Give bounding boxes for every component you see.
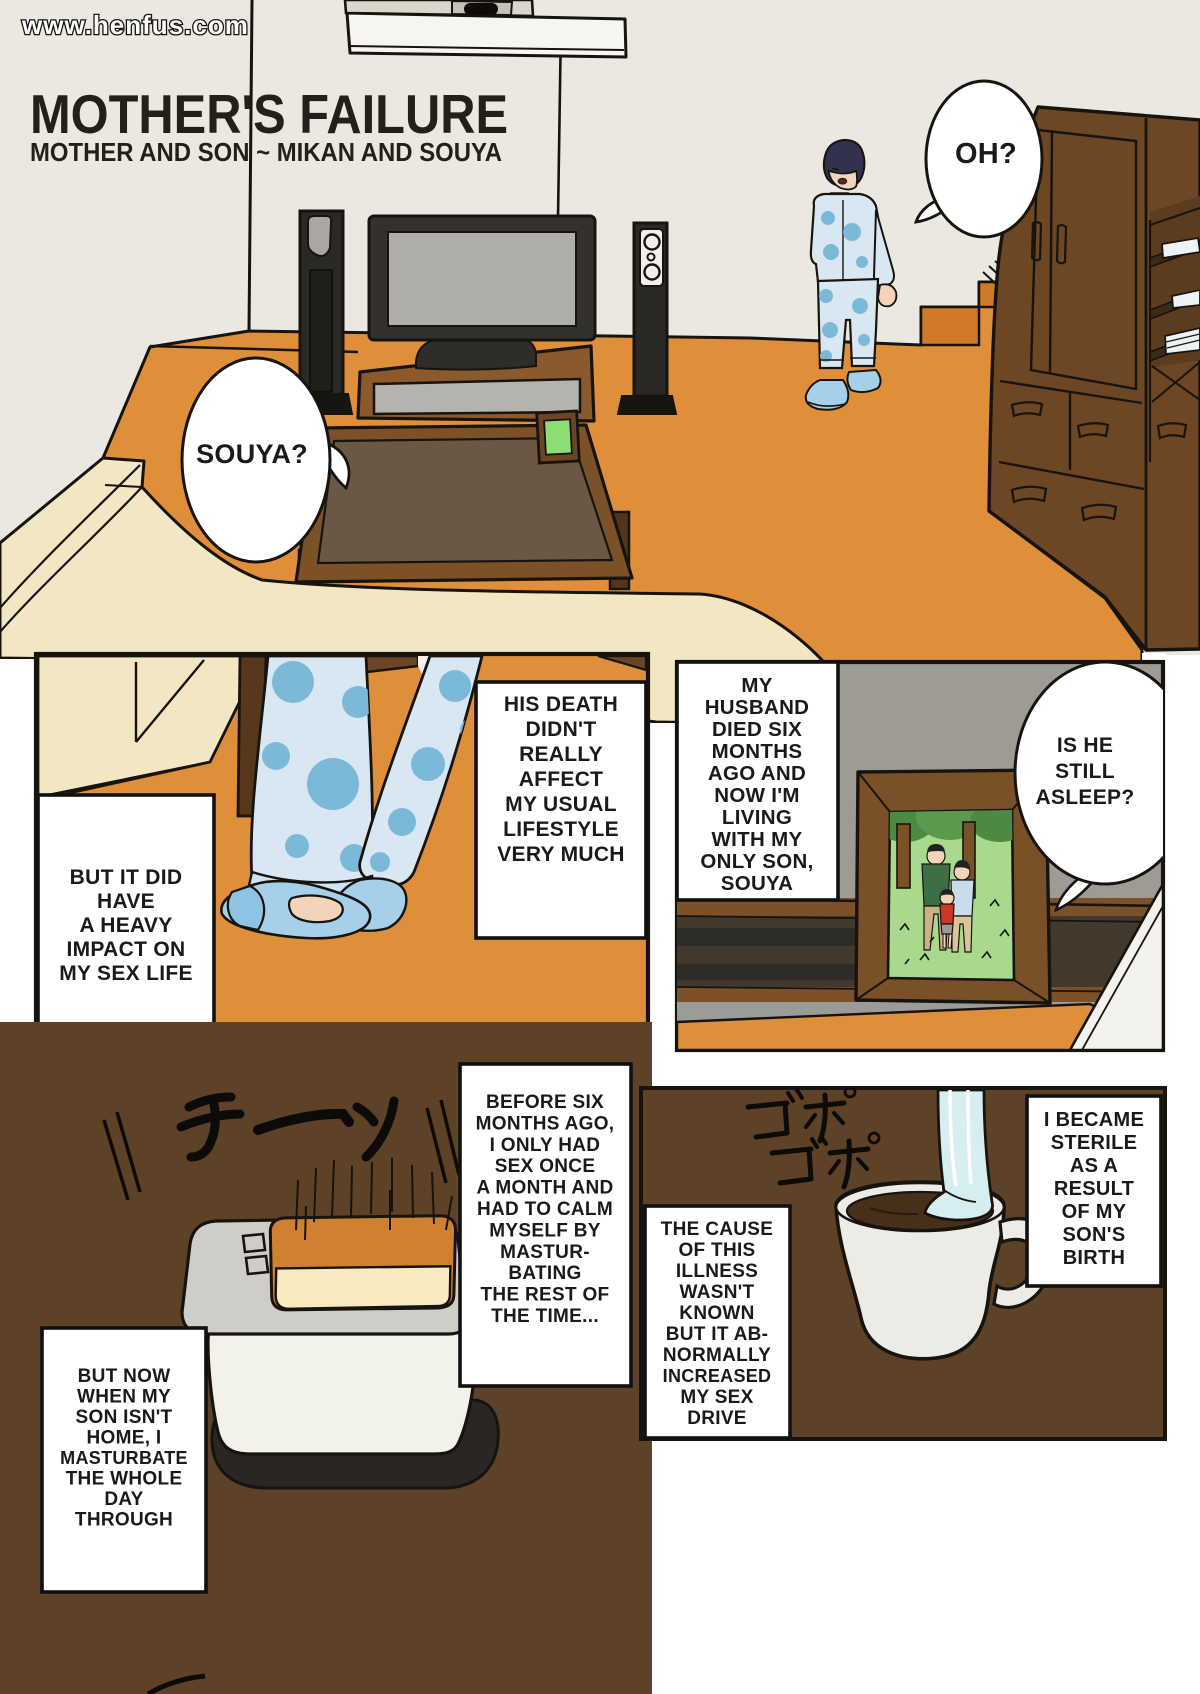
svg-text:BUT IT AB-: BUT IT AB-	[666, 1324, 769, 1345]
svg-text:AS A: AS A	[1070, 1155, 1118, 1177]
svg-text:MY SEX: MY SEX	[680, 1387, 753, 1408]
svg-text:DRIVE: DRIVE	[687, 1408, 747, 1429]
svg-text:OF THIS: OF THIS	[678, 1240, 755, 1261]
svg-text:STERILE: STERILE	[1051, 1132, 1138, 1154]
svg-text:MONTHS AGO,: MONTHS AGO,	[476, 1113, 615, 1134]
svg-text:HAVE: HAVE	[97, 890, 155, 913]
svg-text:HIS DEATH: HIS DEATH	[504, 693, 618, 716]
svg-text:DAY: DAY	[104, 1489, 143, 1510]
svg-text:LIVING: LIVING	[722, 806, 792, 829]
svg-text:HUSBAND: HUSBAND	[705, 696, 810, 719]
svg-text:MASTUR-: MASTUR-	[500, 1242, 590, 1263]
svg-text:HOME, I: HOME, I	[87, 1428, 162, 1449]
svg-text:www.henfus.com: www.henfus.com	[21, 10, 249, 40]
svg-text:ONLY SON,: ONLY SON,	[700, 850, 813, 873]
svg-text:RESULT: RESULT	[1054, 1178, 1134, 1200]
svg-text:SEX ONCE: SEX ONCE	[495, 1156, 596, 1177]
svg-text:MY: MY	[741, 674, 772, 697]
svg-text:OF MY: OF MY	[1062, 1201, 1127, 1223]
svg-text:SON ISN'T: SON ISN'T	[76, 1407, 173, 1428]
svg-text:THE REST OF: THE REST OF	[481, 1285, 610, 1306]
svg-text:BUT IT DID: BUT IT DID	[70, 866, 183, 889]
svg-text:NOW I'M: NOW I'M	[714, 784, 800, 807]
svg-text:MOTHER AND SON ~ MIKAN AND SOU: MOTHER AND SON ~ MIKAN AND SOUYA	[30, 137, 502, 167]
svg-text:ASLEEP?: ASLEEP?	[1036, 786, 1135, 809]
svg-text:AFFECT: AFFECT	[519, 768, 604, 791]
svg-text:MASTURBATE: MASTURBATE	[60, 1448, 188, 1468]
svg-text:LIFESTYLE: LIFESTYLE	[503, 818, 619, 841]
svg-text:DIDN'T: DIDN'T	[526, 718, 597, 741]
svg-text:I ONLY HAD: I ONLY HAD	[490, 1135, 601, 1156]
svg-text:NORMALLY: NORMALLY	[663, 1345, 771, 1366]
svg-text:HAD TO CALM: HAD TO CALM	[477, 1199, 613, 1220]
svg-text:THE TIME...: THE TIME...	[491, 1306, 599, 1327]
svg-text:REALLY: REALLY	[519, 743, 603, 766]
svg-text:WASN'T: WASN'T	[680, 1282, 755, 1303]
svg-text:SOUYA: SOUYA	[721, 872, 794, 895]
svg-text:IS HE: IS HE	[1057, 734, 1113, 757]
svg-text:STILL: STILL	[1055, 760, 1115, 783]
svg-text:A HEAVY: A HEAVY	[79, 914, 172, 937]
svg-text:BATING: BATING	[508, 1263, 581, 1284]
svg-text:A MONTH AND: A MONTH AND	[477, 1178, 614, 1199]
svg-text:BEFORE SIX: BEFORE SIX	[486, 1092, 604, 1113]
svg-text:MY USUAL: MY USUAL	[505, 793, 617, 816]
svg-text:BIRTH: BIRTH	[1063, 1247, 1126, 1269]
svg-text:INCREASED: INCREASED	[663, 1366, 772, 1386]
svg-text:THROUGH: THROUGH	[75, 1510, 173, 1531]
svg-text:MY SEX LIFE: MY SEX LIFE	[59, 962, 193, 985]
svg-text:MYSELF BY: MYSELF BY	[489, 1220, 600, 1241]
svg-text:AGO AND: AGO AND	[708, 762, 806, 785]
svg-text:IMPACT ON: IMPACT ON	[67, 938, 186, 961]
svg-text:I BECAME: I BECAME	[1044, 1109, 1144, 1131]
svg-text:WHEN MY: WHEN MY	[77, 1387, 171, 1408]
svg-text:OH?: OH?	[955, 138, 1017, 170]
svg-text:SOUYA?: SOUYA?	[196, 439, 308, 469]
svg-text:BUT NOW: BUT NOW	[78, 1366, 171, 1387]
svg-text:MONTHS: MONTHS	[712, 740, 803, 763]
svg-text:ILLNESS: ILLNESS	[676, 1261, 758, 1282]
svg-text:WITH MY: WITH MY	[712, 828, 803, 851]
svg-text:THE WHOLE: THE WHOLE	[66, 1469, 183, 1490]
svg-text:DIED SIX: DIED SIX	[712, 718, 802, 741]
svg-text:KNOWN: KNOWN	[679, 1303, 754, 1324]
svg-text:MOTHER'S FAILURE: MOTHER'S FAILURE	[30, 83, 508, 145]
svg-text:VERY MUCH: VERY MUCH	[497, 843, 625, 866]
svg-text:SON'S: SON'S	[1063, 1224, 1126, 1246]
svg-text:THE CAUSE: THE CAUSE	[661, 1219, 774, 1240]
